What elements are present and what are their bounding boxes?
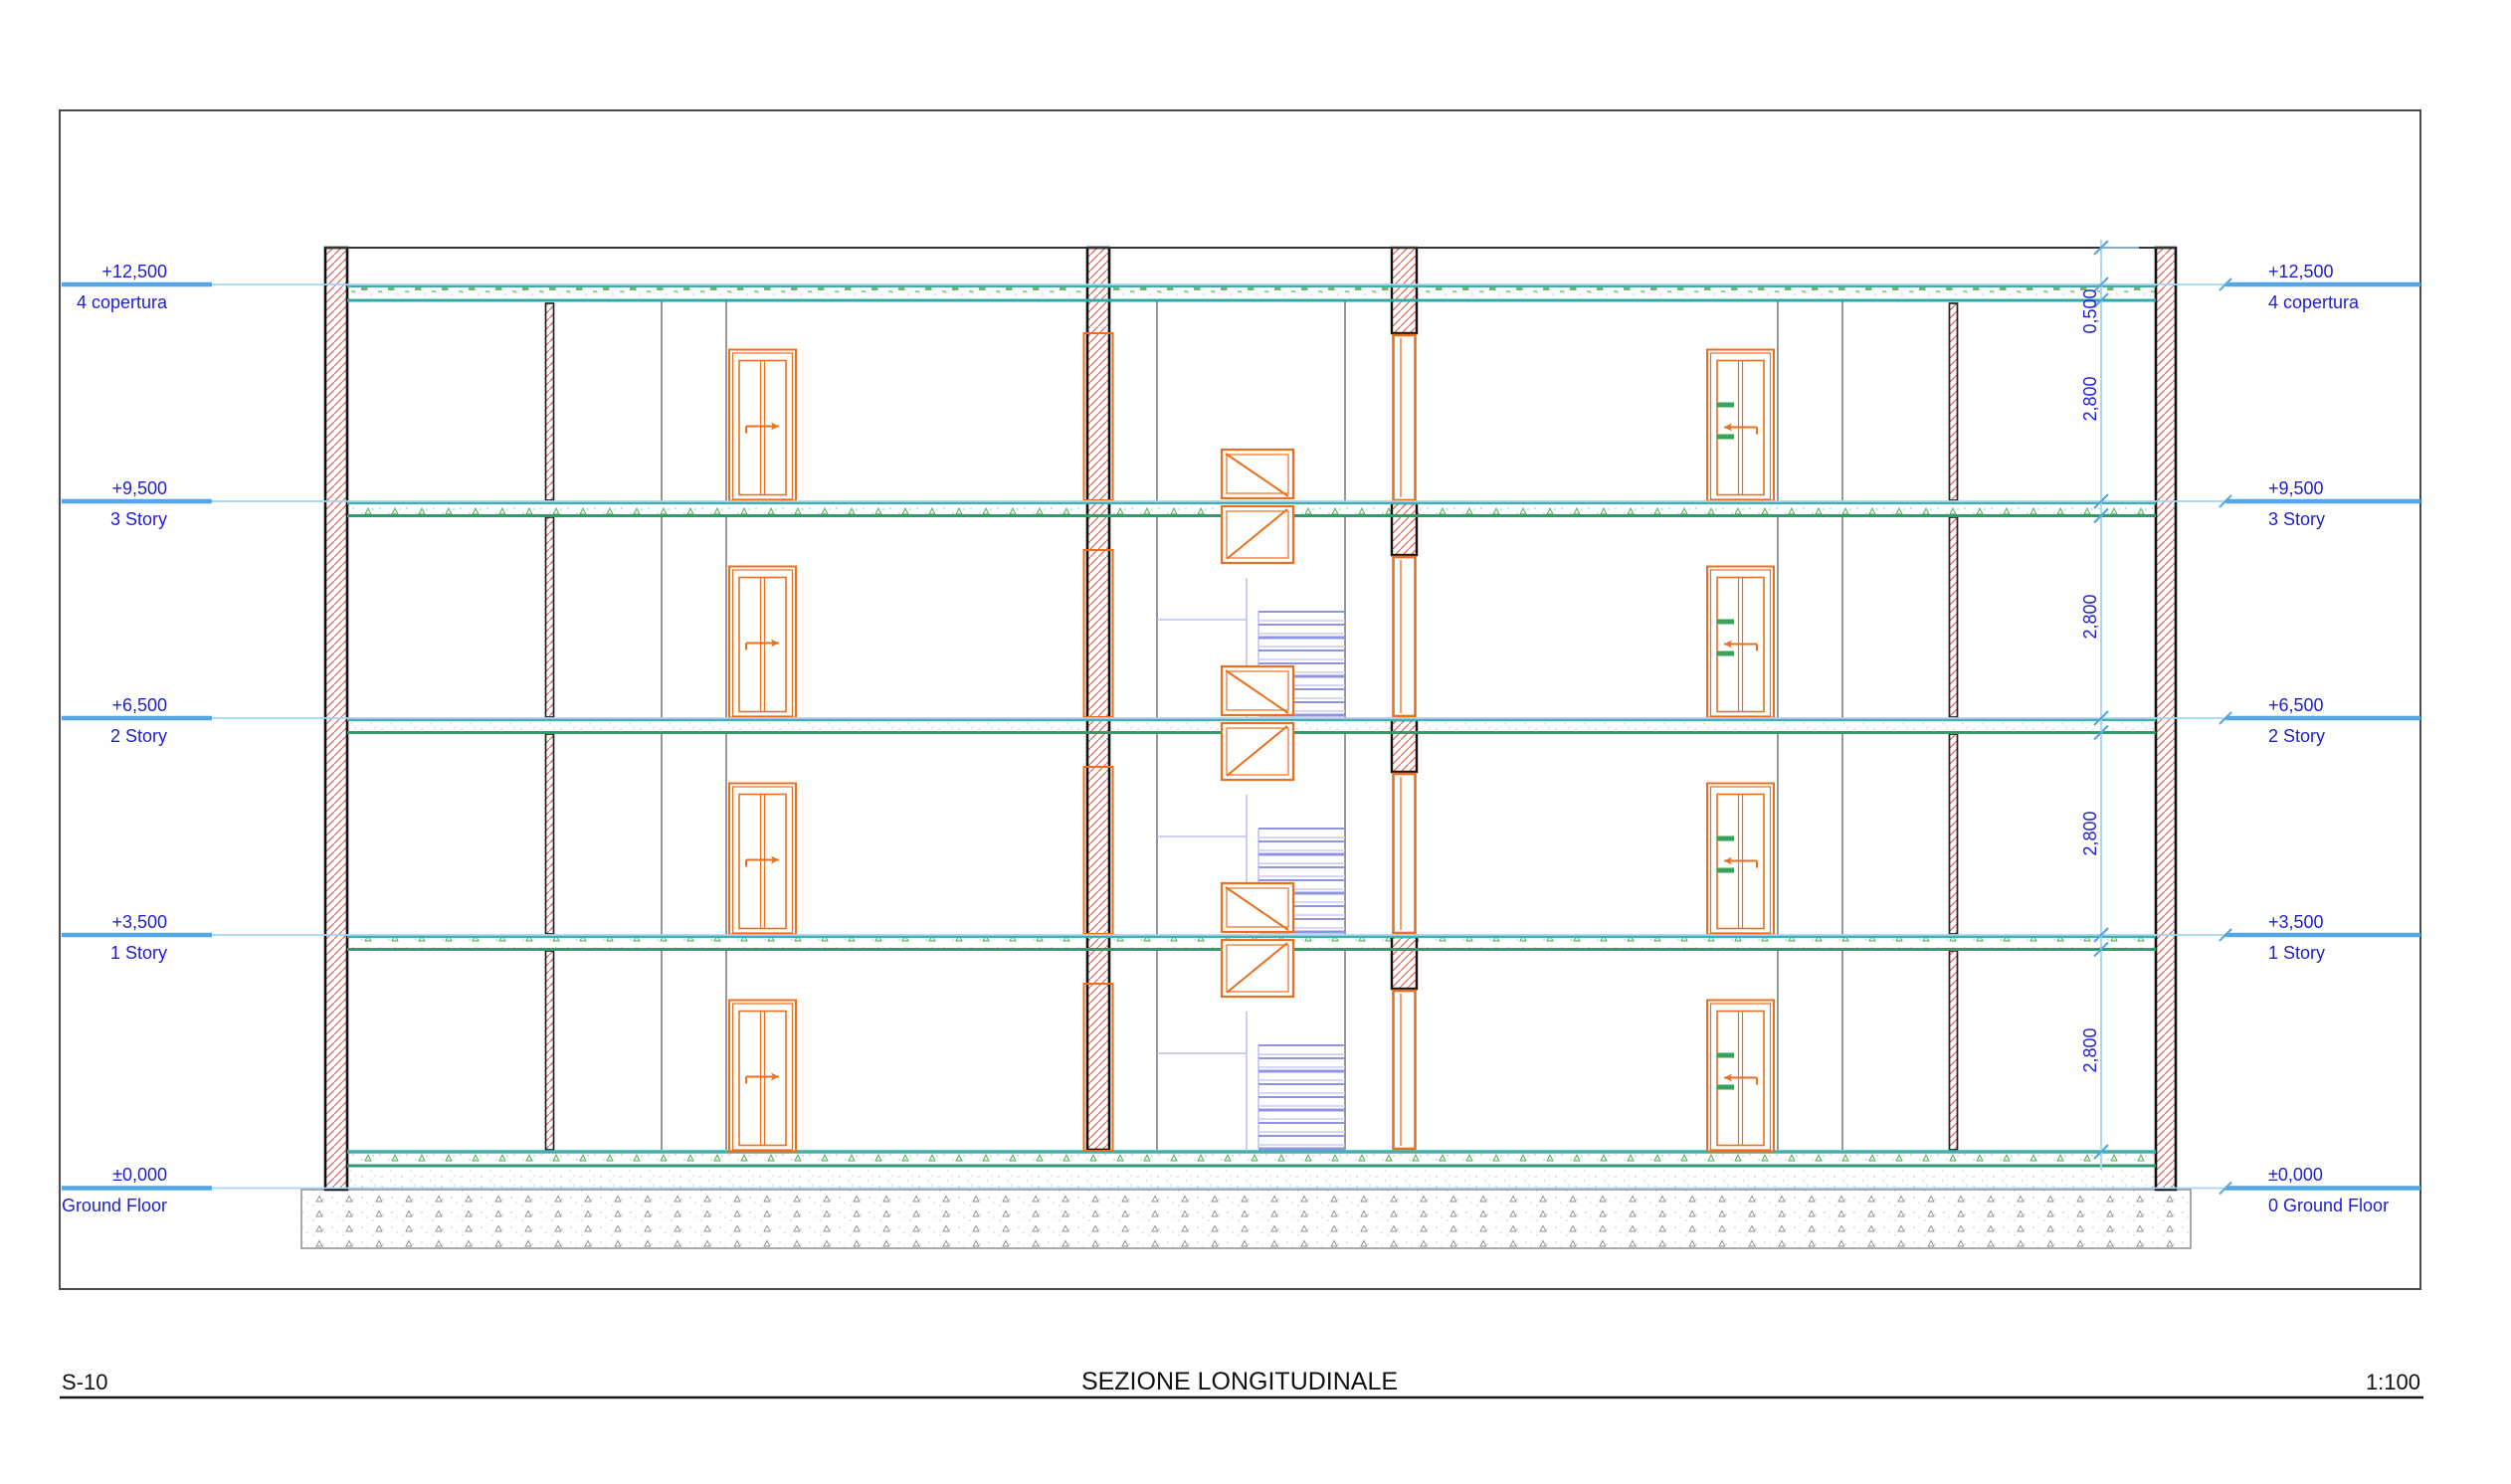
- drawing-scale: 1:100: [2366, 1370, 2420, 1394]
- level-elevation-left: +3,500: [111, 912, 167, 932]
- level-name-left: 1 Story: [110, 943, 167, 963]
- stairwell-wall: [1087, 248, 1109, 1150]
- level-name-right: 4 copertura: [2268, 292, 2360, 312]
- level-elevation-right: ±0,000: [2268, 1165, 2323, 1185]
- section-drawing-canvas: +12,500 4 copertura +12,500 4 copertura …: [0, 0, 2511, 1484]
- door-left-story1: [729, 784, 796, 935]
- level-name-left: 2 Story: [110, 726, 167, 746]
- level-elevation-right: +9,500: [2268, 478, 2324, 498]
- door-right-story2: [1707, 567, 1774, 718]
- level-elevation-left: +6,500: [111, 695, 167, 715]
- foundation-slab: [301, 1190, 2191, 1248]
- door-left-ground: [729, 1001, 796, 1152]
- landing-door-6500: [1222, 666, 1293, 780]
- level-name-right: 0 Ground Floor: [2268, 1196, 2389, 1215]
- level-name-left: 4 copertura: [77, 292, 168, 312]
- dimension-label: 2,800: [2080, 376, 2100, 421]
- door-left-story3: [729, 350, 796, 501]
- shaft-parapet: [1392, 248, 1417, 333]
- level-name-left: Ground Floor: [62, 1196, 167, 1215]
- level-name-right: 1 Story: [2268, 943, 2325, 963]
- ground-subslab-fill: [347, 1168, 2156, 1189]
- level-elevation-left: ±0,000: [112, 1165, 167, 1185]
- level-elevation-left: +12,500: [101, 262, 167, 281]
- door-right-story3: [1707, 350, 1774, 501]
- title-block: S-10 SEZIONE LONGITUDINALE 1:100: [60, 1368, 2423, 1397]
- level-name-left: 3 Story: [110, 509, 167, 529]
- level-elevation-right: +6,500: [2268, 695, 2324, 715]
- door-right-ground: [1707, 1001, 1774, 1152]
- door-left-story2: [729, 567, 796, 718]
- stair-landing-doors: [1222, 450, 1293, 997]
- landing-door-9500: [1222, 450, 1293, 563]
- drawing-number: S-10: [62, 1370, 107, 1394]
- level-elevation-right: +3,500: [2268, 912, 2324, 932]
- drawing-title: SEZIONE LONGITUDINALE: [1081, 1368, 1398, 1395]
- shaft-front-wall: [1392, 248, 1417, 1149]
- landing-door-3500: [1222, 883, 1293, 997]
- dimension-label: 2,800: [2080, 594, 2100, 639]
- level-elevation-right: +12,500: [2268, 262, 2334, 281]
- dimension-label: 2,800: [2080, 1027, 2100, 1072]
- level-name-right: 2 Story: [2268, 726, 2325, 746]
- dimension-label: 2,800: [2080, 811, 2100, 855]
- level-name-right: 3 Story: [2268, 509, 2325, 529]
- door-right-story1: [1707, 784, 1774, 935]
- level-elevation-left: +9,500: [111, 478, 167, 498]
- dimension-label: 0,500: [2080, 288, 2100, 333]
